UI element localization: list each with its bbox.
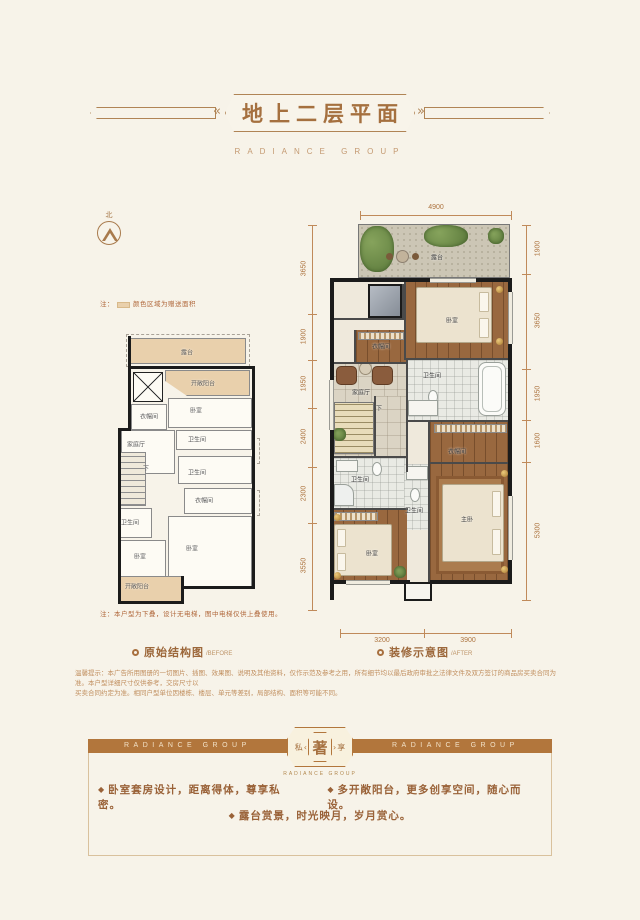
dim-left: 3550 (301, 546, 308, 586)
gift-area-swatch (117, 302, 130, 308)
dim-left: 2400 (301, 417, 308, 457)
toilet-icon (372, 462, 382, 476)
terrace-plants-left (360, 226, 394, 272)
terrace-plant-right (488, 228, 504, 244)
room-label: 开敞阳台 (191, 379, 215, 388)
bullet-icon: ◆ (327, 785, 334, 794)
dim-left: 1900 (301, 317, 308, 357)
compass-needle-inner (105, 233, 115, 241)
window (329, 380, 334, 430)
room-label: 露台 (181, 348, 193, 357)
header-left-rule (90, 107, 216, 119)
toilet-icon (410, 488, 420, 502)
page-title: 地上二层平面 (236, 98, 404, 128)
badge-left-char: 私 (295, 742, 303, 753)
dim-left: 1950 (301, 364, 308, 404)
lamp-icon (334, 572, 341, 579)
ribbon-brand-right: RADIANCE GROUP (392, 742, 519, 749)
feature-item: ◆露台赏景，时光映月，岁月赏心。 (229, 808, 412, 823)
disclaimer-line-1: 温馨提示：本广告所用图册的一切图片、插图、效果图、说明及其他资料，仅作示范及参考… (75, 669, 565, 689)
legend-note: 注：颜色区域为赠送面积 (100, 298, 196, 308)
room-label: 衣帽间 (195, 496, 213, 505)
elevator-shaft (368, 284, 402, 318)
bed-bottom (334, 524, 392, 576)
room-label: 卧室 (366, 549, 378, 558)
legend-note-text: 颜色区域为赠送面积 (133, 301, 196, 308)
legend-note-prefix: 注： (100, 301, 114, 308)
room-label: 主卧 (461, 515, 473, 524)
disclaimer-line-2: 买卖合同约定为准。相同户型单位因楼栋、楼层、单元等差别，局部结构、面积等可能不同… (75, 689, 565, 699)
disclaimer: 温馨提示：本广告所用图册的一切图片、插图、效果图、说明及其他资料，仅作示范及参考… (75, 669, 565, 699)
room-label: 衣帽间 (140, 412, 158, 421)
lamp-icon (496, 286, 503, 293)
vanity-left (336, 460, 358, 472)
room-label: 卫生间 (188, 435, 206, 444)
dim-right: 5300 (535, 511, 542, 551)
indoor-plant (333, 428, 346, 441)
terrace-stool-2 (412, 253, 419, 260)
header-brand: RADIANCE GROUP (0, 147, 640, 156)
header-right-rule (424, 107, 550, 119)
lamp-icon (334, 514, 341, 521)
bullet-icon: ◆ (98, 785, 105, 794)
feature-text: 露台赏景，时光映月，岁月赏心。 (239, 811, 412, 822)
stairs-before (120, 452, 146, 506)
room-label: 衣帽间 (372, 342, 390, 351)
page-title-box: 地上二层平面 (225, 94, 415, 132)
room-label: 卫生间 (121, 518, 139, 527)
bathtub-upper (478, 362, 506, 416)
window (508, 496, 513, 560)
before-plan-note: 注：本户型为下叠，设计无电梯，图中电梯仅供上叠使用。 (100, 608, 282, 618)
indoor-plant (394, 566, 406, 578)
stair-direction-label: 下 (376, 404, 382, 413)
badge-chevron-right-icon: › (333, 743, 336, 752)
vanity-mid (406, 466, 428, 480)
dim-left: 3650 (301, 249, 308, 289)
compass-ring (97, 221, 121, 245)
window (508, 292, 513, 344)
compass-north-label: 北 (92, 210, 126, 220)
compass-icon: 北 (92, 210, 126, 254)
dim-bottom: 3900 (438, 637, 498, 644)
badge-center-char: 著 (308, 732, 332, 762)
lamp-icon (501, 566, 508, 573)
dim-right: 1600 (535, 421, 542, 461)
room-label: 卫生间 (423, 371, 441, 380)
stair-direction-label: 下 (143, 464, 149, 473)
window (346, 580, 390, 585)
caption-before: 原始结构图 /BEFORE (132, 644, 232, 660)
room-label: 卫生间 (188, 468, 206, 477)
wardrobe-upper (358, 332, 404, 340)
terrace-stool-1 (386, 253, 393, 260)
room-label: 卫生间 (351, 475, 369, 484)
caption-after-en: /AFTER (451, 651, 472, 657)
dim-top: 4900 (406, 204, 466, 211)
dim-bottom: 3200 (352, 637, 412, 644)
room-label: 家庭厅 (127, 440, 145, 449)
wardrobe-right (434, 424, 507, 433)
armchair-2 (372, 366, 393, 385)
vanity-upper (408, 400, 438, 416)
elevator-shaft (133, 372, 163, 402)
room-label: 开敞阳台 (125, 582, 149, 591)
terrace-plants-center (424, 225, 468, 247)
room-label: 衣帽间 (448, 447, 466, 456)
room-label: 家庭厅 (352, 388, 370, 397)
shower-left (334, 484, 354, 506)
brand-badge: 私 ‹ 著 › 享 (287, 727, 353, 767)
header-left-chevron-icon: « (213, 104, 219, 119)
badge-brand-sub: RADIANCE GROUP (0, 771, 640, 777)
room-label: 卧室 (190, 406, 202, 415)
dim-right: 1900 (535, 229, 542, 269)
terrace-table (396, 250, 409, 263)
room-label: 卧室 (186, 544, 198, 553)
room-label: 卧室 (134, 552, 146, 561)
caption-dot-icon (377, 649, 384, 656)
lamp-icon (496, 338, 503, 345)
caption-before-en: /BEFORE (206, 651, 232, 657)
badge-right-char: 享 (337, 742, 345, 753)
room-label: 卫生间 (405, 506, 423, 515)
features-row-2: ◆露台赏景，时光映月，岁月赏心。 (98, 808, 542, 823)
dim-right: 1950 (535, 374, 542, 414)
badge-chevron-left-icon: ‹ (304, 743, 307, 752)
lamp-icon (501, 470, 508, 477)
caption-dot-icon (132, 649, 139, 656)
terrace-door (430, 278, 476, 283)
room-label: 露台 (431, 253, 443, 262)
bullet-icon: ◆ (229, 811, 236, 820)
dim-left: 2300 (301, 474, 308, 514)
caption-after-label: 装修示意图 (389, 644, 449, 660)
room-bedroom-top (168, 398, 252, 428)
poster-page: « » 地上二层平面 RADIANCE GROUP 北 注：颜色区域为赠送面积 (0, 0, 640, 920)
header-right-chevron-icon: » (417, 104, 423, 119)
dim-right: 3650 (535, 301, 542, 341)
caption-before-label: 原始结构图 (144, 644, 204, 660)
armchair-1 (336, 366, 357, 385)
caption-after: 装修示意图 /AFTER (377, 644, 472, 660)
room-label: 卧室 (446, 316, 458, 325)
ribbon-brand-left: RADIANCE GROUP (124, 742, 251, 749)
equipment-platform (404, 582, 432, 601)
